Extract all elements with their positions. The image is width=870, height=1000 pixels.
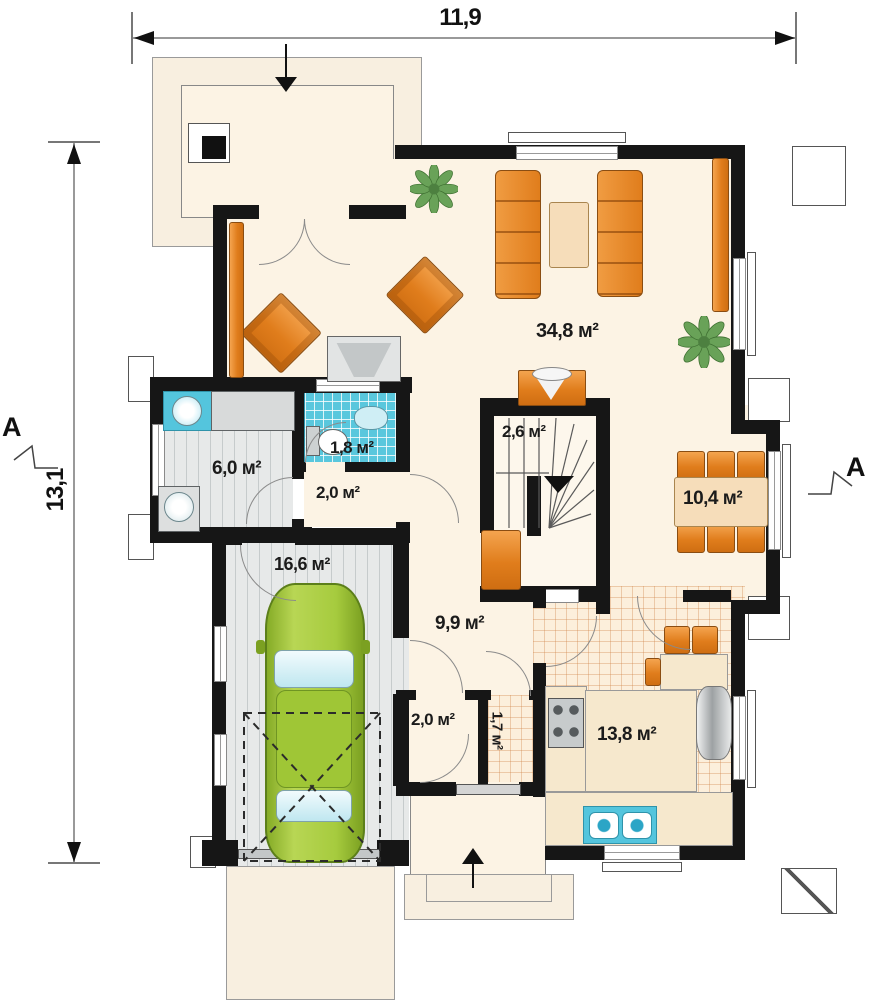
room-label-hall: 9,9 м² bbox=[435, 613, 484, 635]
window bbox=[768, 451, 781, 550]
tv-screen bbox=[328, 343, 400, 377]
chimney-block bbox=[792, 146, 846, 206]
window bbox=[214, 626, 227, 682]
driveway bbox=[226, 866, 395, 1000]
room-label-utility: 6,0 м² bbox=[212, 458, 261, 480]
front-door bbox=[456, 784, 521, 795]
dimension-line-top bbox=[132, 37, 797, 39]
entry-arrow-icon bbox=[462, 848, 484, 864]
wall bbox=[396, 782, 456, 796]
wall-niche bbox=[545, 589, 579, 603]
entrance-arrow-line bbox=[285, 44, 287, 78]
window-sill bbox=[747, 690, 756, 788]
dining-chair bbox=[707, 451, 735, 480]
plant-icon bbox=[410, 165, 458, 213]
room-label-stairs: 2,6 м² bbox=[502, 422, 546, 442]
coffee-table bbox=[549, 202, 589, 268]
section-marker-a-left: A bbox=[2, 412, 22, 443]
wall bbox=[349, 205, 406, 219]
dimension-tick bbox=[48, 141, 100, 143]
entry-arrow-line bbox=[472, 864, 474, 888]
window bbox=[733, 258, 746, 350]
wall bbox=[393, 694, 409, 786]
dimension-line-left bbox=[73, 142, 75, 864]
section-cut-line-right bbox=[806, 470, 854, 496]
parking-space-marking bbox=[243, 712, 381, 862]
wall bbox=[529, 690, 546, 700]
dimension-width-label: 11,9 bbox=[420, 4, 500, 32]
corner-block bbox=[781, 868, 837, 914]
section-cut-line-left bbox=[12, 444, 60, 470]
dining-chair bbox=[677, 451, 705, 480]
wall bbox=[731, 600, 780, 614]
window bbox=[604, 845, 680, 860]
entrance-arrow-icon bbox=[275, 77, 297, 92]
wall bbox=[212, 528, 226, 858]
floor-plan: 11,9 13,1 A A bbox=[0, 0, 870, 1000]
room-label-hallway: 2,0 м² bbox=[316, 483, 360, 503]
car-mirror bbox=[256, 640, 265, 654]
sink-basin bbox=[622, 812, 652, 839]
sideboard bbox=[712, 158, 729, 312]
car-mirror bbox=[361, 640, 370, 654]
arrow-right-icon bbox=[775, 31, 795, 45]
dimension-tick bbox=[48, 862, 100, 864]
kitchen-sink bbox=[583, 806, 657, 844]
bar-stool bbox=[645, 658, 661, 686]
car-windshield bbox=[274, 650, 354, 688]
room-label-dining: 10,4 м² bbox=[683, 488, 742, 510]
fireplace-cap bbox=[532, 367, 572, 381]
window bbox=[733, 696, 746, 780]
wall bbox=[295, 528, 409, 545]
dining-chair bbox=[737, 524, 765, 553]
fridge bbox=[696, 686, 732, 760]
dining-chair bbox=[737, 451, 765, 480]
dining-chair bbox=[707, 524, 735, 553]
utility-sink bbox=[172, 396, 202, 426]
wall bbox=[292, 462, 306, 472]
washing-machine-drum bbox=[164, 492, 194, 522]
wall bbox=[396, 377, 410, 472]
sink-basin bbox=[589, 812, 619, 839]
stove bbox=[548, 698, 584, 748]
plant-icon bbox=[678, 316, 730, 368]
arrow-down-icon bbox=[67, 842, 81, 862]
wc-sink bbox=[354, 406, 388, 430]
bar-stool bbox=[692, 626, 718, 654]
porch-fireplace-core bbox=[202, 136, 226, 159]
utility-counter bbox=[211, 391, 295, 431]
window-sill bbox=[508, 132, 626, 143]
sofa bbox=[495, 170, 541, 299]
room-label-wc: 1,8 м² bbox=[330, 438, 374, 458]
room-label-pantry: 1,7 м² bbox=[489, 711, 506, 749]
wall bbox=[731, 420, 780, 434]
room-label-kitchen: 13,8 м² bbox=[597, 724, 656, 746]
room-label-living: 34,8 м² bbox=[536, 320, 598, 343]
wall bbox=[478, 695, 488, 787]
garage-door-jamb bbox=[377, 840, 409, 866]
dining-chair bbox=[677, 524, 705, 553]
window-sill bbox=[782, 444, 791, 558]
window-sill bbox=[602, 862, 682, 872]
wardrobe bbox=[229, 222, 244, 378]
wall bbox=[393, 528, 409, 638]
wall bbox=[480, 398, 494, 533]
garage-door-jamb bbox=[202, 840, 238, 866]
window-sill bbox=[747, 252, 756, 356]
dimension-tick bbox=[131, 12, 133, 64]
entry-steps-bottom-inner bbox=[426, 874, 552, 902]
pilaster bbox=[748, 378, 790, 422]
window bbox=[214, 734, 227, 786]
tv bbox=[327, 336, 401, 382]
arrow-left-icon bbox=[134, 31, 154, 45]
sofa bbox=[597, 170, 643, 297]
wall bbox=[519, 782, 546, 796]
arrow-up-icon bbox=[67, 144, 81, 164]
breakfast-bar bbox=[660, 654, 728, 690]
window bbox=[516, 146, 618, 160]
room-label-garage: 16,6 м² bbox=[274, 554, 330, 575]
wall bbox=[213, 205, 259, 219]
wall bbox=[596, 398, 610, 614]
dimension-tick bbox=[795, 12, 797, 64]
wall bbox=[213, 205, 227, 400]
room-label-closet: 2,0 м² bbox=[411, 710, 455, 730]
wall bbox=[533, 586, 546, 608]
stair-cabinet bbox=[481, 530, 521, 590]
